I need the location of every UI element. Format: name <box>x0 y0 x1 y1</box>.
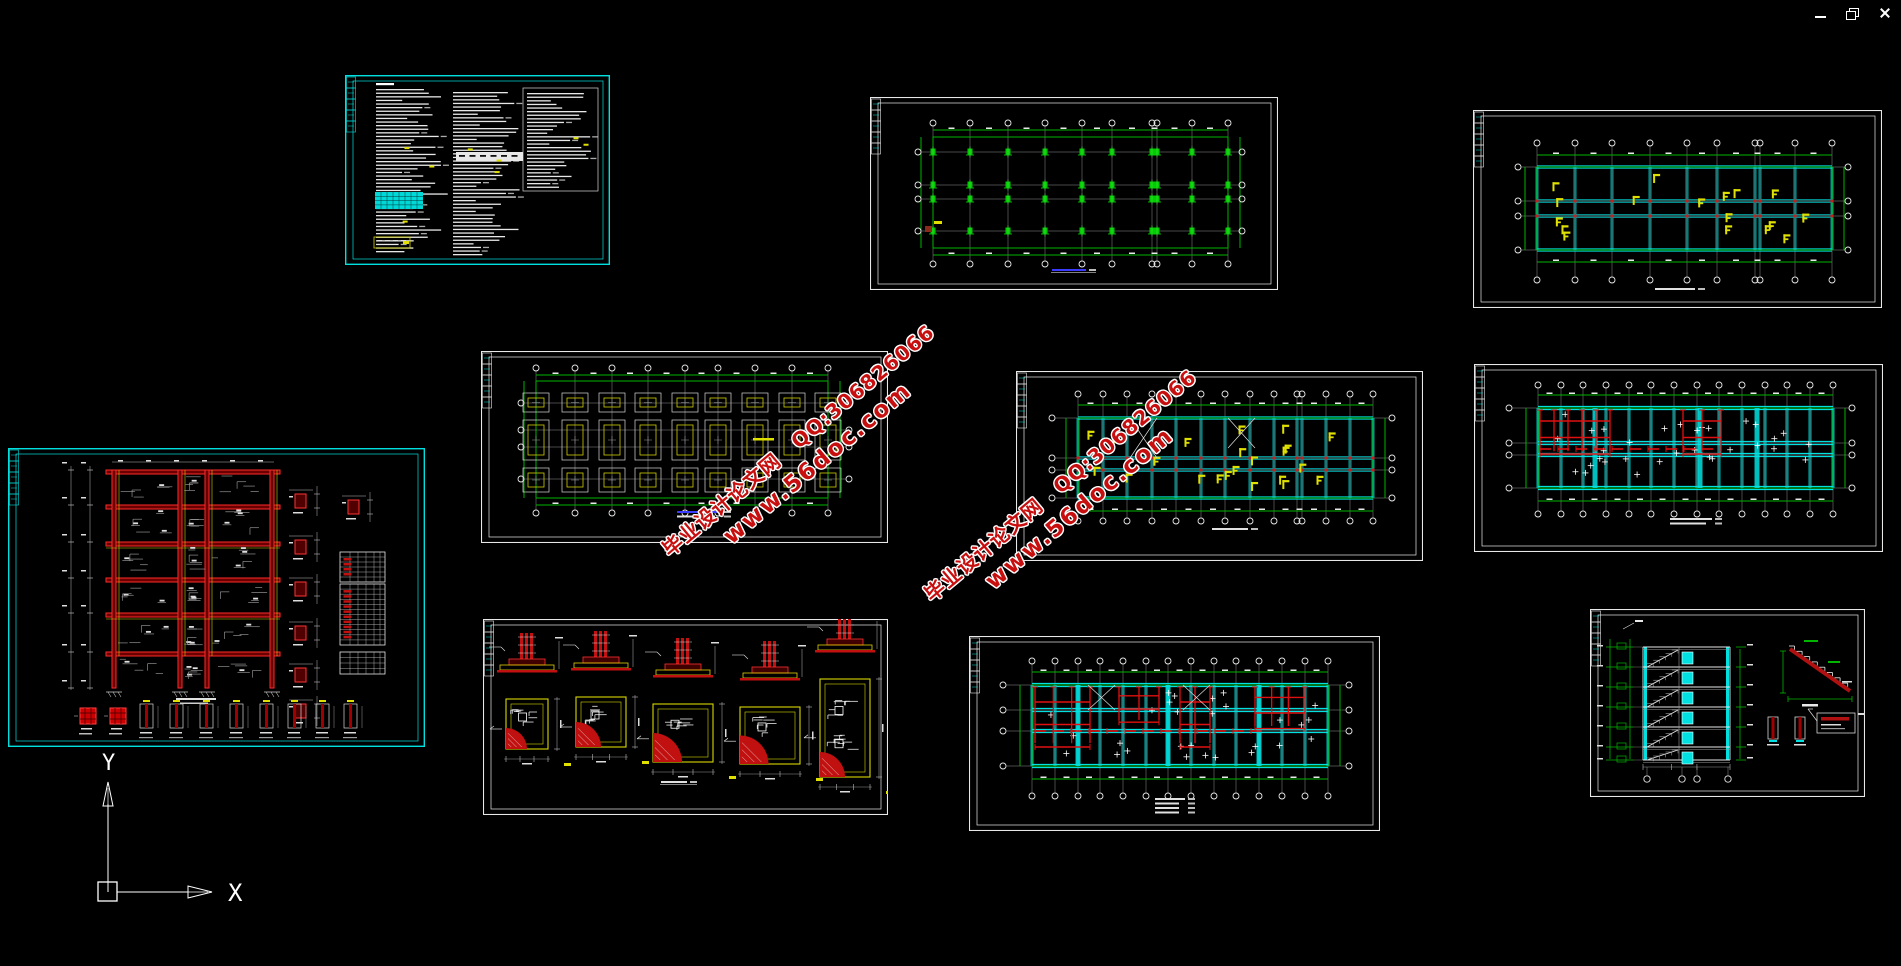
drawing-slab-reinforcement-plan-2[interactable] <box>969 636 1380 831</box>
drawing-slab-reinforcement-plan-1[interactable] <box>1474 364 1883 552</box>
drawing-roof-beam-plan[interactable] <box>1473 110 1882 308</box>
drawing-footing-details[interactable] <box>483 619 888 815</box>
cad-viewport[interactable]: 毕业设计论文网 QQ:306826066 www.56doc.com 毕业设计论… <box>0 0 1901 966</box>
drawing-floor-beam-plan[interactable] <box>1016 371 1423 561</box>
drawing-frame-reinforcement-elevation[interactable] <box>8 448 425 747</box>
restore-icon[interactable] <box>1845 6 1861 20</box>
ucs-icon: Y X <box>88 748 288 918</box>
drawing-stair-section[interactable] <box>1590 609 1865 797</box>
drawing-notes-sheet[interactable] <box>345 75 610 265</box>
minimize-icon[interactable] <box>1813 6 1829 20</box>
drawing-foundation-plan[interactable] <box>481 351 888 543</box>
close-icon[interactable] <box>1877 6 1893 20</box>
ucs-y-label: Y <box>102 751 115 776</box>
window-controls <box>1813 6 1893 20</box>
drawing-column-layout-plan[interactable] <box>870 97 1278 290</box>
ucs-x-label: X <box>228 879 243 907</box>
